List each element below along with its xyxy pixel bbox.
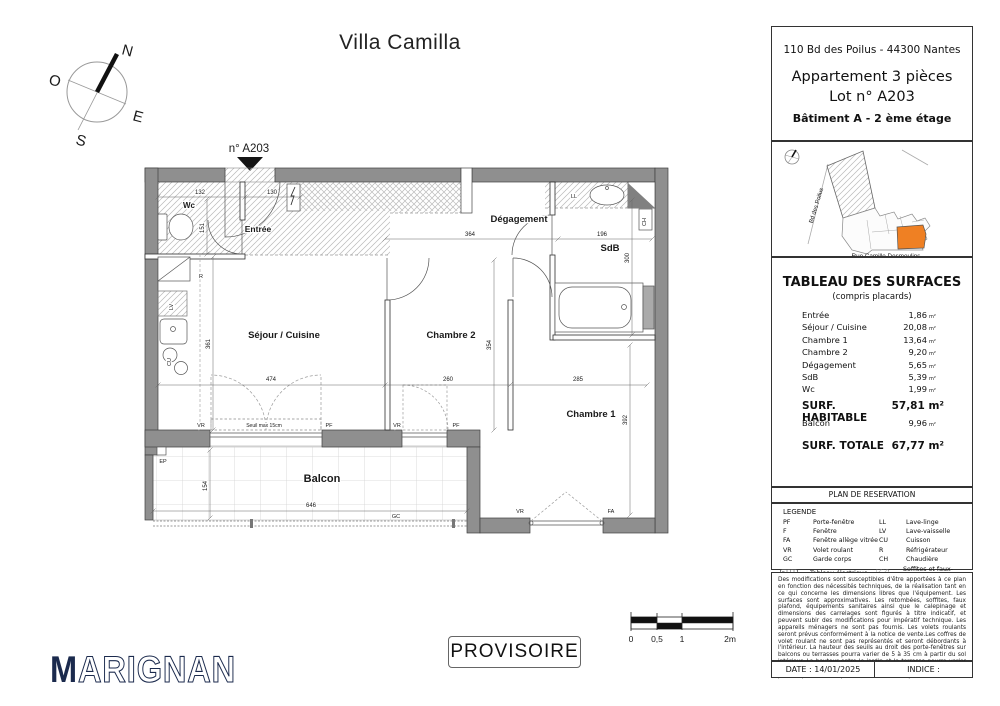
legend-title: LEGENDE bbox=[783, 508, 972, 516]
row-value: 13,64 bbox=[903, 335, 927, 345]
table-row: Chambre 29,20m² bbox=[802, 347, 944, 359]
label-vr-chambre1: VR bbox=[516, 509, 524, 515]
label-pf-chambre2: PF bbox=[452, 423, 460, 429]
dim-chambre1-height: 392 bbox=[623, 414, 629, 425]
legend-abbr: CH bbox=[879, 555, 906, 564]
legend-label: Porte-fenêtre bbox=[813, 518, 879, 527]
rainwater-outlet bbox=[157, 447, 166, 455]
scale-0: 0 bbox=[629, 634, 634, 644]
dim-wc-height: 151 bbox=[200, 222, 206, 233]
floor-plan-drawing: 132 130 151 364 196 300 361 474 260 285 … bbox=[145, 168, 668, 533]
room-wc: Wc bbox=[183, 201, 196, 210]
hatched-building bbox=[827, 151, 875, 218]
legend-abbr: F bbox=[783, 527, 813, 536]
room-degagement: Dégagement bbox=[490, 214, 548, 225]
hob-burner bbox=[175, 362, 188, 375]
floor-plan-page: N O E S n° A203 bbox=[0, 0, 1000, 706]
balcony-floor bbox=[153, 446, 467, 528]
plan-reservation-header: PLAN DE RESERVATION bbox=[771, 487, 973, 503]
surface-rows: Entrée1,86m² Séjour / Cuisine20,08m² Cha… bbox=[802, 310, 944, 397]
logo-m: M bbox=[50, 649, 78, 690]
unit-marker: n° A203 bbox=[229, 143, 269, 171]
row-label: Séjour / Cuisine bbox=[802, 322, 903, 332]
legend-label: Lave-vaisselle bbox=[906, 527, 972, 536]
dim-sdb-height: 300 bbox=[625, 252, 631, 263]
table-row: Chambre 113,64m² bbox=[802, 335, 944, 347]
row-label: Wc bbox=[802, 384, 909, 394]
legend-label: Volet roulant bbox=[813, 546, 879, 555]
compass-n: N bbox=[120, 41, 135, 60]
row-label: Dégagement bbox=[802, 360, 909, 370]
row-unit: m² bbox=[927, 314, 944, 320]
date-cell: DATE : 14/01/2025 bbox=[772, 662, 874, 677]
label-chaudiere: CH bbox=[642, 218, 648, 226]
row-value: 1,86 bbox=[909, 310, 927, 320]
legend-grid: PFPorte-fenêtre LLLave-linge FFenêtre LV… bbox=[783, 518, 972, 564]
street-bottom-label: Rue Camille Desmoulins bbox=[852, 253, 921, 256]
duct-pillar bbox=[461, 168, 472, 213]
room-sdb: SdB bbox=[601, 243, 620, 254]
row-unit: m² bbox=[927, 364, 944, 370]
row-label: Balcon bbox=[802, 418, 909, 428]
table-row: Entrée1,86m² bbox=[802, 310, 944, 322]
table-row: Séjour / Cuisine20,08m² bbox=[802, 322, 944, 334]
scale-2m: 2m bbox=[724, 634, 736, 644]
legend-label: Garde corps bbox=[813, 555, 879, 564]
surface-totale-row: SURF. TOTALE 67,77 m² bbox=[802, 440, 944, 452]
street-left-label: Bd des Poilus bbox=[809, 187, 825, 224]
row-unit: m² bbox=[927, 422, 944, 428]
dim-degagement-width: 364 bbox=[465, 232, 476, 238]
label-garde-corps: GC bbox=[392, 514, 400, 520]
legend-label: Fenêtre allège vitrée bbox=[813, 536, 879, 545]
row-label: SdB bbox=[802, 372, 909, 382]
dim-balcon-width: 646 bbox=[306, 503, 317, 509]
row-unit: m² bbox=[927, 351, 944, 357]
room-chambre1: Chambre 1 bbox=[566, 409, 616, 420]
legend-label: Fenêtre bbox=[813, 527, 879, 536]
legend-label: Cuisson bbox=[906, 536, 972, 545]
dim-sejour-height: 361 bbox=[206, 338, 212, 349]
row-label: Entrée bbox=[802, 310, 909, 320]
legend-label: Réfrigérateur bbox=[906, 546, 972, 555]
dim-chambre2-width: 260 bbox=[443, 377, 454, 383]
room-balcon: Balcon bbox=[304, 473, 341, 485]
row-value: 5,65 bbox=[909, 360, 927, 370]
indice-cell: INDICE : bbox=[874, 662, 972, 677]
row-value: 20,08 bbox=[903, 322, 927, 332]
scale-bar: 0 0,5 1 2m bbox=[629, 612, 736, 644]
apartment-type: Appartement 3 pièces bbox=[772, 69, 972, 85]
highlighted-unit bbox=[897, 225, 926, 249]
dim-sejour-width: 474 bbox=[266, 377, 277, 383]
row-unit: m² bbox=[927, 339, 944, 345]
building-floor: Bâtiment A - 2 ème étage bbox=[772, 112, 972, 125]
row-label: Chambre 2 bbox=[802, 347, 909, 357]
label-ep: EP bbox=[159, 459, 167, 465]
row-value: 1,99 bbox=[909, 384, 927, 394]
logo-rest: ARIGNAN bbox=[78, 649, 236, 690]
row-label: Chambre 1 bbox=[802, 335, 903, 345]
legend-abbr: CU bbox=[879, 536, 906, 545]
mini-compass-icon bbox=[785, 150, 799, 164]
label-lave-vaisselle: LV bbox=[169, 304, 175, 311]
legend-abbr: FA bbox=[783, 536, 813, 545]
row-value: 9,96 bbox=[909, 418, 927, 428]
room-entree: Entrée bbox=[245, 224, 272, 234]
dim-wc-width: 132 bbox=[195, 190, 206, 196]
page-title: Villa Camilla bbox=[250, 31, 550, 55]
legend-label: Lave-linge bbox=[906, 518, 972, 527]
compass-rose-icon: N O E S bbox=[47, 41, 145, 150]
row-unit: m² bbox=[927, 326, 944, 332]
legend-abbr: PF bbox=[783, 518, 813, 527]
provisoire-stamp: PROVISOIRE bbox=[448, 636, 581, 668]
row-value: 9,20 bbox=[909, 347, 927, 357]
svg-text:MARIGNAN: MARIGNAN bbox=[50, 649, 236, 690]
legend-abbr: GC bbox=[783, 555, 813, 564]
dim-entry-width: 130 bbox=[267, 190, 278, 196]
compass-o: O bbox=[47, 71, 63, 90]
seuil-note: Seuil max 15cm bbox=[246, 423, 282, 429]
scale-05: 0,5 bbox=[651, 634, 663, 644]
row-unit: m² bbox=[927, 388, 944, 394]
date-indice-row: DATE : 14/01/2025 INDICE : bbox=[771, 661, 973, 678]
scale-1: 1 bbox=[680, 634, 685, 644]
label-fridge: R bbox=[199, 274, 203, 280]
surface-table-title: TABLEAU DES SURFACES bbox=[772, 275, 972, 290]
label-pf-sejour: PF bbox=[325, 423, 333, 429]
compass-s: S bbox=[74, 131, 88, 150]
unit-marker-label: n° A203 bbox=[229, 143, 269, 155]
plan-reservation-label: PLAN DE RESERVATION bbox=[829, 490, 916, 499]
table-row: Wc1,99m² bbox=[802, 384, 944, 396]
legend-box: LEGENDE PFPorte-fenêtre LLLave-linge FFe… bbox=[771, 503, 973, 570]
row-value: 67,77 m² bbox=[892, 440, 944, 452]
surface-table-subtitle: (compris placards) bbox=[772, 292, 972, 302]
lot-number: Lot n° A203 bbox=[772, 89, 972, 105]
row-value: 5,39 bbox=[909, 372, 927, 382]
toilet-tank bbox=[158, 214, 167, 240]
compass-e: E bbox=[131, 107, 145, 126]
toilet-bowl bbox=[169, 214, 193, 240]
dim-sdb-width: 196 bbox=[597, 232, 608, 238]
room-sejour-cuisine: Séjour / Cuisine bbox=[248, 330, 320, 341]
label-fa-chambre1: FA bbox=[608, 509, 615, 515]
dim-chambre1-width: 285 bbox=[573, 377, 584, 383]
label-vr-chambre2: VR bbox=[393, 423, 401, 429]
legend-label: Chaudière bbox=[906, 555, 972, 564]
location-map: Bd des Poilus Rue Camille Desmoulins bbox=[771, 141, 973, 257]
balcon-row: Balcon 9,96 m² bbox=[802, 418, 944, 430]
dishwasher bbox=[158, 291, 187, 316]
row-label: SURF. TOTALE bbox=[802, 440, 892, 452]
info-box: 110 Bd des Poilus - 44300 Nantes Apparte… bbox=[771, 26, 973, 141]
legend-abbr: R bbox=[879, 546, 906, 555]
room-chambre2: Chambre 2 bbox=[426, 330, 475, 341]
row-unit: m² bbox=[927, 376, 944, 382]
table-row: SdB5,39m² bbox=[802, 372, 944, 384]
dim-balcon-height: 154 bbox=[203, 480, 209, 491]
legend-abbr: VR bbox=[783, 546, 813, 555]
legend-abbr: LL bbox=[879, 518, 906, 527]
marignan-logo: MARIGNAN bbox=[28, 638, 258, 694]
location-map-drawing: Bd des Poilus Rue Camille Desmoulins bbox=[772, 142, 972, 256]
address: 110 Bd des Poilus - 44300 Nantes bbox=[772, 44, 972, 56]
label-cuisson: CU bbox=[167, 358, 173, 366]
legend-abbr: LV bbox=[879, 527, 906, 536]
surface-table: TABLEAU DES SURFACES (compris placards) … bbox=[771, 257, 973, 487]
table-row: Dégagement5,65m² bbox=[802, 360, 944, 372]
label-vr-sejour: VR bbox=[197, 423, 205, 429]
label-lave-linge: LL bbox=[571, 194, 577, 200]
notes-box: Des modifications sont susceptibles d'êt… bbox=[771, 572, 973, 661]
dim-chambre2-height: 354 bbox=[487, 339, 493, 350]
